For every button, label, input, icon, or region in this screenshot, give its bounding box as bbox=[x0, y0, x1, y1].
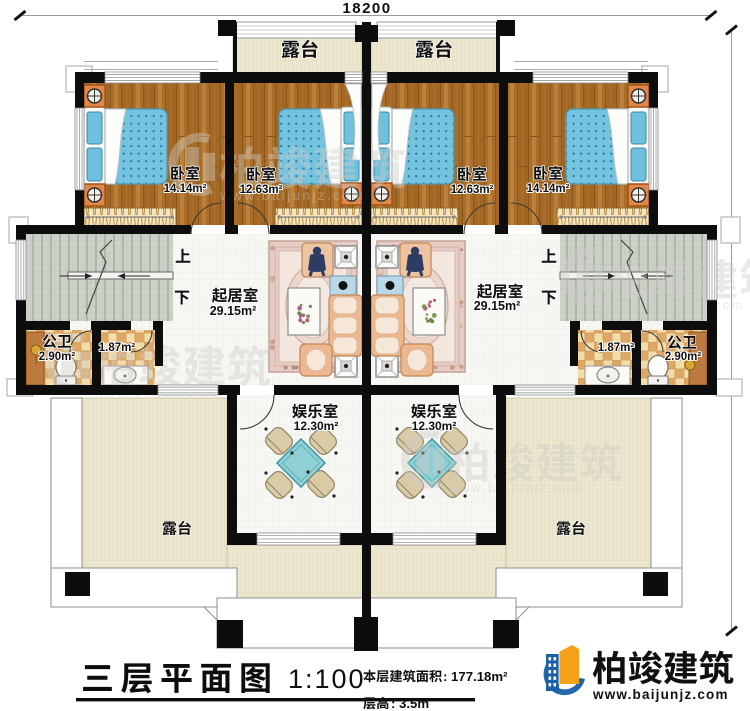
svg-text:1.87m²: 1.87m² bbox=[99, 342, 136, 354]
svg-text:18200: 18200 bbox=[342, 0, 391, 17]
svg-text:29.15m²: 29.15m² bbox=[210, 304, 257, 318]
svg-text:: 177.18m²: : 177.18m² bbox=[443, 669, 508, 684]
svg-text:14.14m²: 14.14m² bbox=[527, 183, 570, 195]
svg-text:29.15m²: 29.15m² bbox=[474, 299, 521, 313]
svg-text:2.90m²: 2.90m² bbox=[39, 351, 76, 363]
svg-text:www.baijunjz.com: www.baijunjz.com bbox=[448, 481, 584, 495]
svg-text:12.63m²: 12.63m² bbox=[451, 184, 494, 196]
svg-text:12.63m²: 12.63m² bbox=[240, 184, 283, 196]
svg-text:12.30m²: 12.30m² bbox=[412, 419, 457, 433]
svg-text:www.baijunjz.com: www.baijunjz.com bbox=[608, 298, 744, 312]
svg-text:14.14m²: 14.14m² bbox=[164, 183, 207, 195]
svg-text:12.30m²: 12.30m² bbox=[294, 419, 339, 433]
svg-text:www.baijunjz.com: www.baijunjz.com bbox=[592, 687, 729, 702]
svg-text:: 3.5m: : 3.5m bbox=[391, 696, 429, 711]
svg-text:1:100: 1:100 bbox=[288, 664, 366, 694]
svg-text:1.87m²: 1.87m² bbox=[598, 342, 635, 354]
svg-text:2.90m²: 2.90m² bbox=[665, 351, 702, 363]
